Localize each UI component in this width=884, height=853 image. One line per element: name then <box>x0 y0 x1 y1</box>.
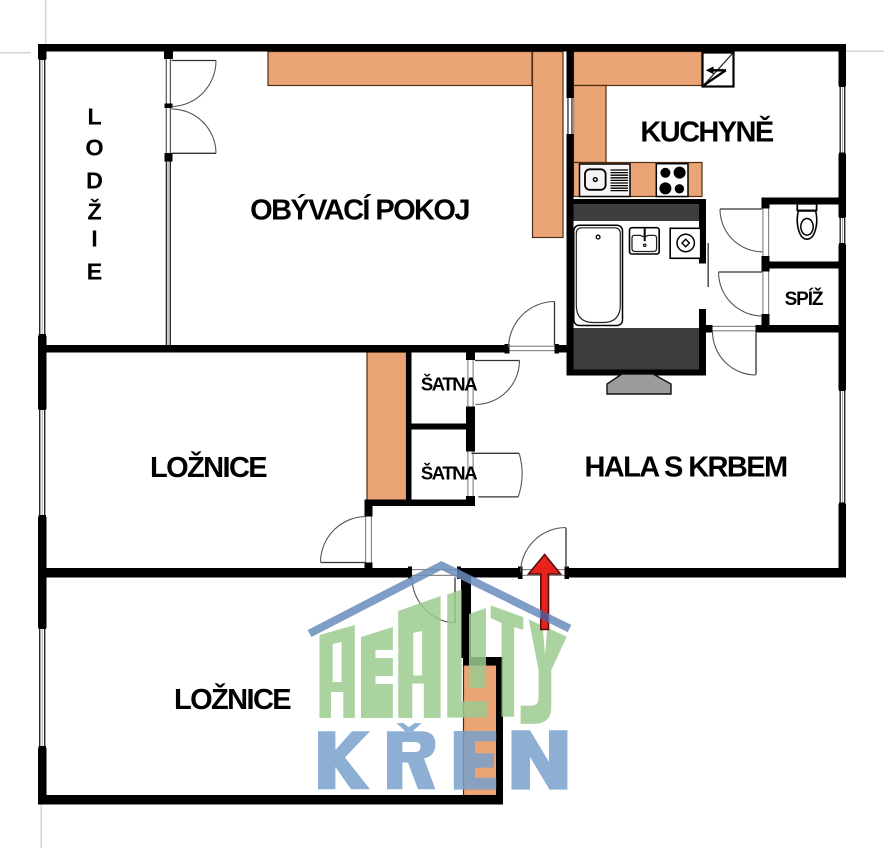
svg-text:E: E <box>87 258 103 284</box>
svg-text:O: O <box>85 135 103 161</box>
svg-text:ŠATNA: ŠATNA <box>421 463 477 484</box>
svg-text:LOŽNICE: LOŽNICE <box>150 450 267 484</box>
svg-text:Ž: Ž <box>87 197 101 224</box>
svg-text:ŠATNA: ŠATNA <box>421 374 477 395</box>
svg-text:D: D <box>86 167 103 193</box>
svg-text:OBÝVACÍ POKOJ: OBÝVACÍ POKOJ <box>250 193 469 227</box>
svg-text:LOŽNICE: LOŽNICE <box>174 682 291 716</box>
svg-text:I: I <box>91 226 98 252</box>
svg-text:KUCHYNĚ: KUCHYNĚ <box>640 115 773 149</box>
svg-text:L: L <box>87 104 101 130</box>
svg-text:SPÍŽ: SPÍŽ <box>785 288 824 310</box>
svg-text:HALA S KRBEM: HALA S KRBEM <box>584 452 786 484</box>
